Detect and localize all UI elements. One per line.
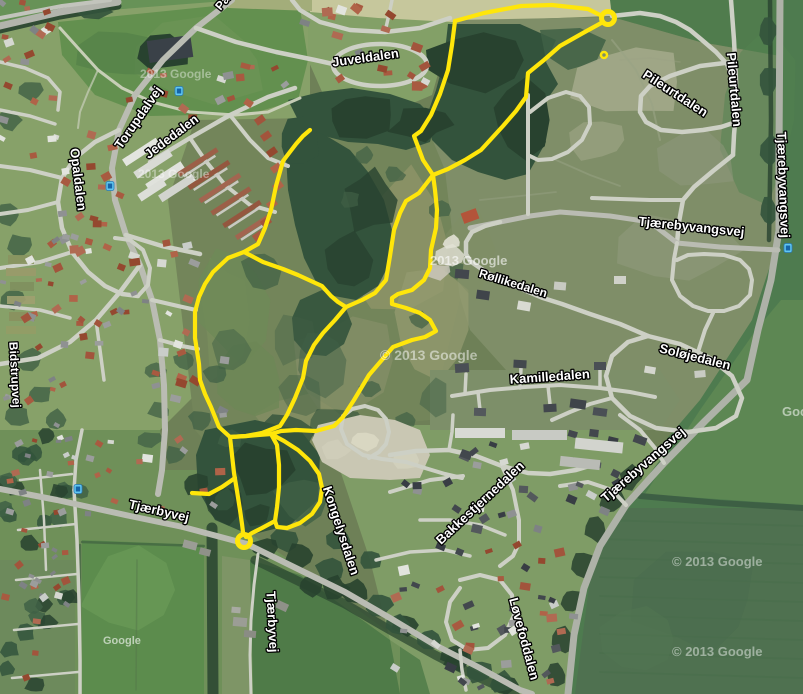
svg-text:2013 Google: 2013 Google bbox=[138, 167, 210, 181]
svg-text:Tjærbyvej: Tjærbyvej bbox=[263, 591, 281, 653]
svg-text:Google: Google bbox=[782, 404, 803, 419]
svg-text:2013 Google: 2013 Google bbox=[140, 67, 212, 81]
svg-text:Google: Google bbox=[103, 635, 141, 647]
svg-text:© 2013 Google: © 2013 Google bbox=[380, 347, 478, 363]
svg-text:© 2013 Google: © 2013 Google bbox=[672, 554, 763, 569]
svg-text:© 2013 Google: © 2013 Google bbox=[672, 644, 763, 659]
svg-text:2013 Google: 2013 Google bbox=[430, 253, 507, 268]
